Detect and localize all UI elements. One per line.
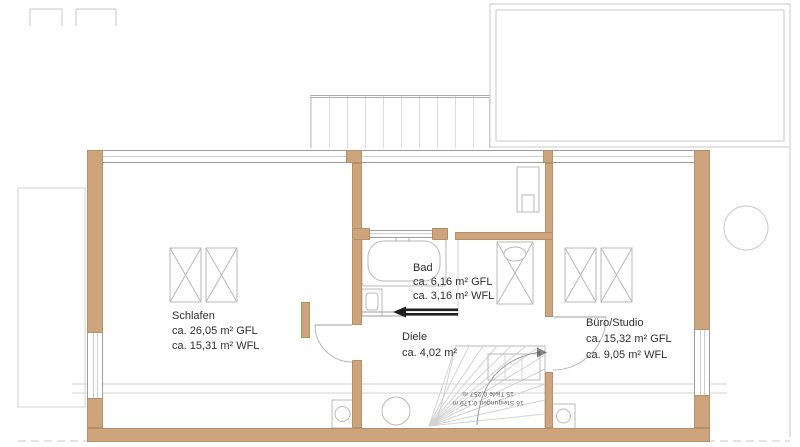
floor-plan-linework [0,0,800,447]
wall-top-junction-a [346,150,362,163]
roof-outline-top-right [490,4,790,437]
window-left [87,333,103,398]
tree-circle [724,206,768,250]
wall-right-lower [694,395,710,428]
terrace-outline-left [18,188,85,407]
round-fixture [382,397,410,425]
washing-machine-right [552,404,575,429]
room-area-wfl: ca. 3,16 m² WFL [413,289,494,303]
room-name: Schlafen [172,309,259,324]
room-area-gfl: ca. 26,05 m² GFL [172,324,259,339]
wall-top-window-band [87,150,710,163]
dormer-outlines [30,9,116,26]
room-area-gfl: ca. 6,16 m² GFL [413,275,494,289]
partition-buero-upper [545,163,553,317]
radiator [517,167,539,212]
room-label-bad: Bad ca. 6,16 m² GFL ca. 3,16 m² WFL [413,261,494,303]
room-name: Büro/Studio [586,315,672,331]
knee-wall-lines [72,384,727,393]
room-label-diele: Diele ca. 4,02 m² [402,329,457,361]
wall-shaft-north [455,232,553,240]
partition-schlafen-lower [352,360,362,428]
room-area-wfl: ca. 9,05 m² WFL [586,347,672,363]
stair-treads-text: 15 Tiefe 0,257 m [432,389,544,398]
room-label-schlafen: Schlafen ca. 26,05 m² GFL ca. 15,31 m² W… [172,309,259,354]
partition-buero-lower [545,372,553,428]
wardrobe-schlafen [170,248,237,302]
wall-bottom [87,428,710,442]
wall-right-upper [694,150,710,330]
door-schlafen [315,325,352,362]
window-right [694,330,710,395]
room-name: Bad [413,261,494,275]
wardrobe-buero [565,248,632,302]
partition-schlafen-upper [352,163,362,325]
tub-wall-stub-left [352,228,370,240]
bad-door-threshold [393,307,458,318]
room-area-gfl: ca. 15,32 m² GFL [586,331,672,347]
room-area-gfl: ca. 4,02 m² [402,345,457,361]
tub-glass-partition [370,230,432,238]
room-area-wfl: ca. 15,31 m² WFL [172,339,259,354]
room-label-buero: Büro/Studio ca. 15,32 m² GFL ca. 9,05 m²… [586,315,672,363]
shaft-wc [497,242,533,304]
stair-risers-text: 16 Steigungen 0,179 m [432,398,544,407]
room-name: Diele [402,329,457,345]
washing-machine-left [332,400,353,428]
tub-wall-stub-right [432,228,448,240]
floor-plan: Schlafen ca. 26,05 m² GFL ca. 15,31 m² W… [0,0,800,447]
wall-left-upper [87,150,103,333]
wall-left-lower [87,398,103,428]
stair-annotation: 16 Steigungen 0,179 m 15 Tiefe 0,257 m [432,389,544,407]
wall-pillar [301,302,310,338]
wall-top-junction-b [543,150,553,163]
